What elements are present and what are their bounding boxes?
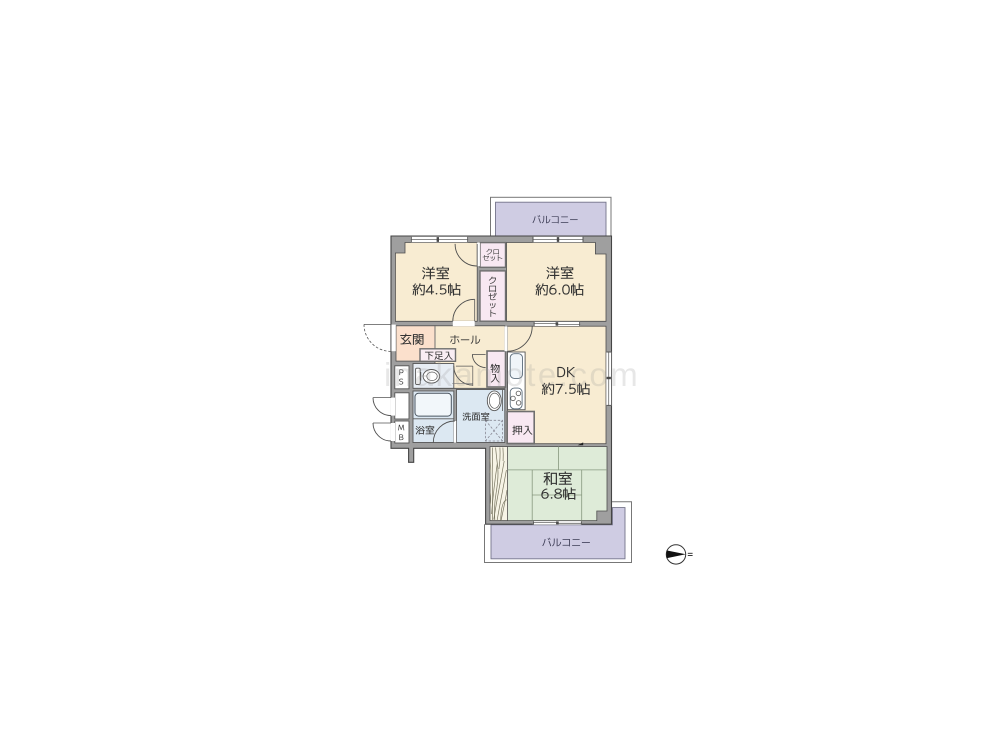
svg-text:inakamote.com: inakamote.com — [384, 356, 640, 393]
